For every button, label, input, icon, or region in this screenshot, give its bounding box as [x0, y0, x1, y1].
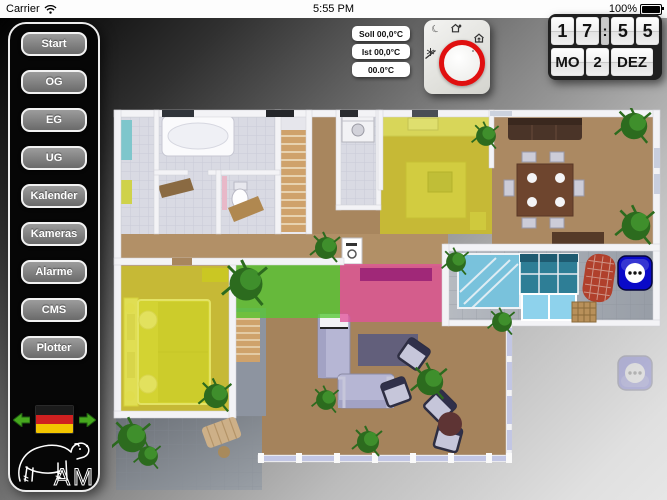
coffee-table [438, 412, 462, 436]
sidebar-button-cms[interactable]: CMS [21, 298, 87, 322]
bath-shelf [120, 120, 132, 160]
night-mode-icon[interactable]: ☾ [430, 24, 442, 37]
fireplace [342, 238, 362, 264]
logo-text: AM [54, 464, 96, 488]
dial-indicator [472, 50, 474, 52]
washing-machine [342, 116, 374, 142]
sofa-vertical [318, 314, 350, 378]
dining-sofa [508, 118, 582, 140]
flip-clock: 1 7 : 5 5 MO 2 DEZ [548, 14, 662, 80]
bear-logo: AM [14, 434, 98, 488]
stairs-upper [280, 116, 306, 232]
sidebar-button-kalender[interactable]: Kalender [21, 184, 87, 208]
sidebar-button-alarme[interactable]: Alarme [21, 260, 87, 284]
comfort-mode-icon[interactable] [473, 33, 485, 44]
kitchen-zone[interactable] [380, 114, 492, 234]
actual-temperature-label: Ist 00,0°C [352, 44, 410, 59]
clock-weekday: MO [551, 48, 584, 76]
sidebar-button-start[interactable]: Start [21, 32, 87, 56]
frost-protection-icon[interactable] [425, 47, 436, 59]
sidebar-button-eg[interactable]: EG [21, 108, 87, 132]
towel-rail [222, 176, 227, 210]
sidebar-button-og[interactable]: OG [21, 70, 87, 94]
clock-hour-tens: 1 [551, 17, 574, 45]
sidebar-button-ug[interactable]: UG [21, 146, 87, 170]
sidebar-button-plotter[interactable]: Plotter [21, 336, 87, 360]
clock-hour-ones: 7 [576, 17, 599, 45]
outside-temperature-label: 00.0°C [352, 62, 410, 77]
setpoint-temperature-label: Soll 00,0°C [352, 26, 410, 41]
arrow-left-icon[interactable] [13, 413, 30, 427]
clock-minute-tens: 5 [611, 17, 634, 45]
thermostat-readouts: Soll 00,0°C Ist 00,0°C 00.0°C [352, 26, 410, 80]
clock-date: 2 [586, 48, 609, 76]
battery-icon [640, 4, 662, 15]
away-mode-icon[interactable] [450, 23, 462, 34]
clock-minute-ones: 5 [636, 17, 659, 45]
bathtub-basin [168, 123, 228, 149]
sidebar-button-kameras[interactable]: Kameras [21, 222, 87, 246]
language-switcher [10, 405, 98, 434]
socket-reflection [618, 356, 652, 390]
clock-month: DEZ [611, 48, 653, 76]
patio-table [218, 446, 230, 458]
arrow-right-icon[interactable] [79, 413, 96, 427]
floor-plan [112, 108, 665, 494]
terrace-chair [572, 302, 596, 322]
power-socket-button[interactable] [618, 256, 652, 290]
app-screen: Carrier 5:55 PM 100% [0, 0, 667, 500]
dial-knob[interactable] [439, 40, 485, 86]
sidebar: Start OG EG UG Kalender Kameras Alarme C… [8, 22, 100, 492]
clock-separator: : [601, 17, 610, 45]
thermostat-panel: ☾ [424, 20, 490, 94]
german-flag[interactable] [35, 405, 74, 434]
hall-sideboard [360, 268, 432, 281]
